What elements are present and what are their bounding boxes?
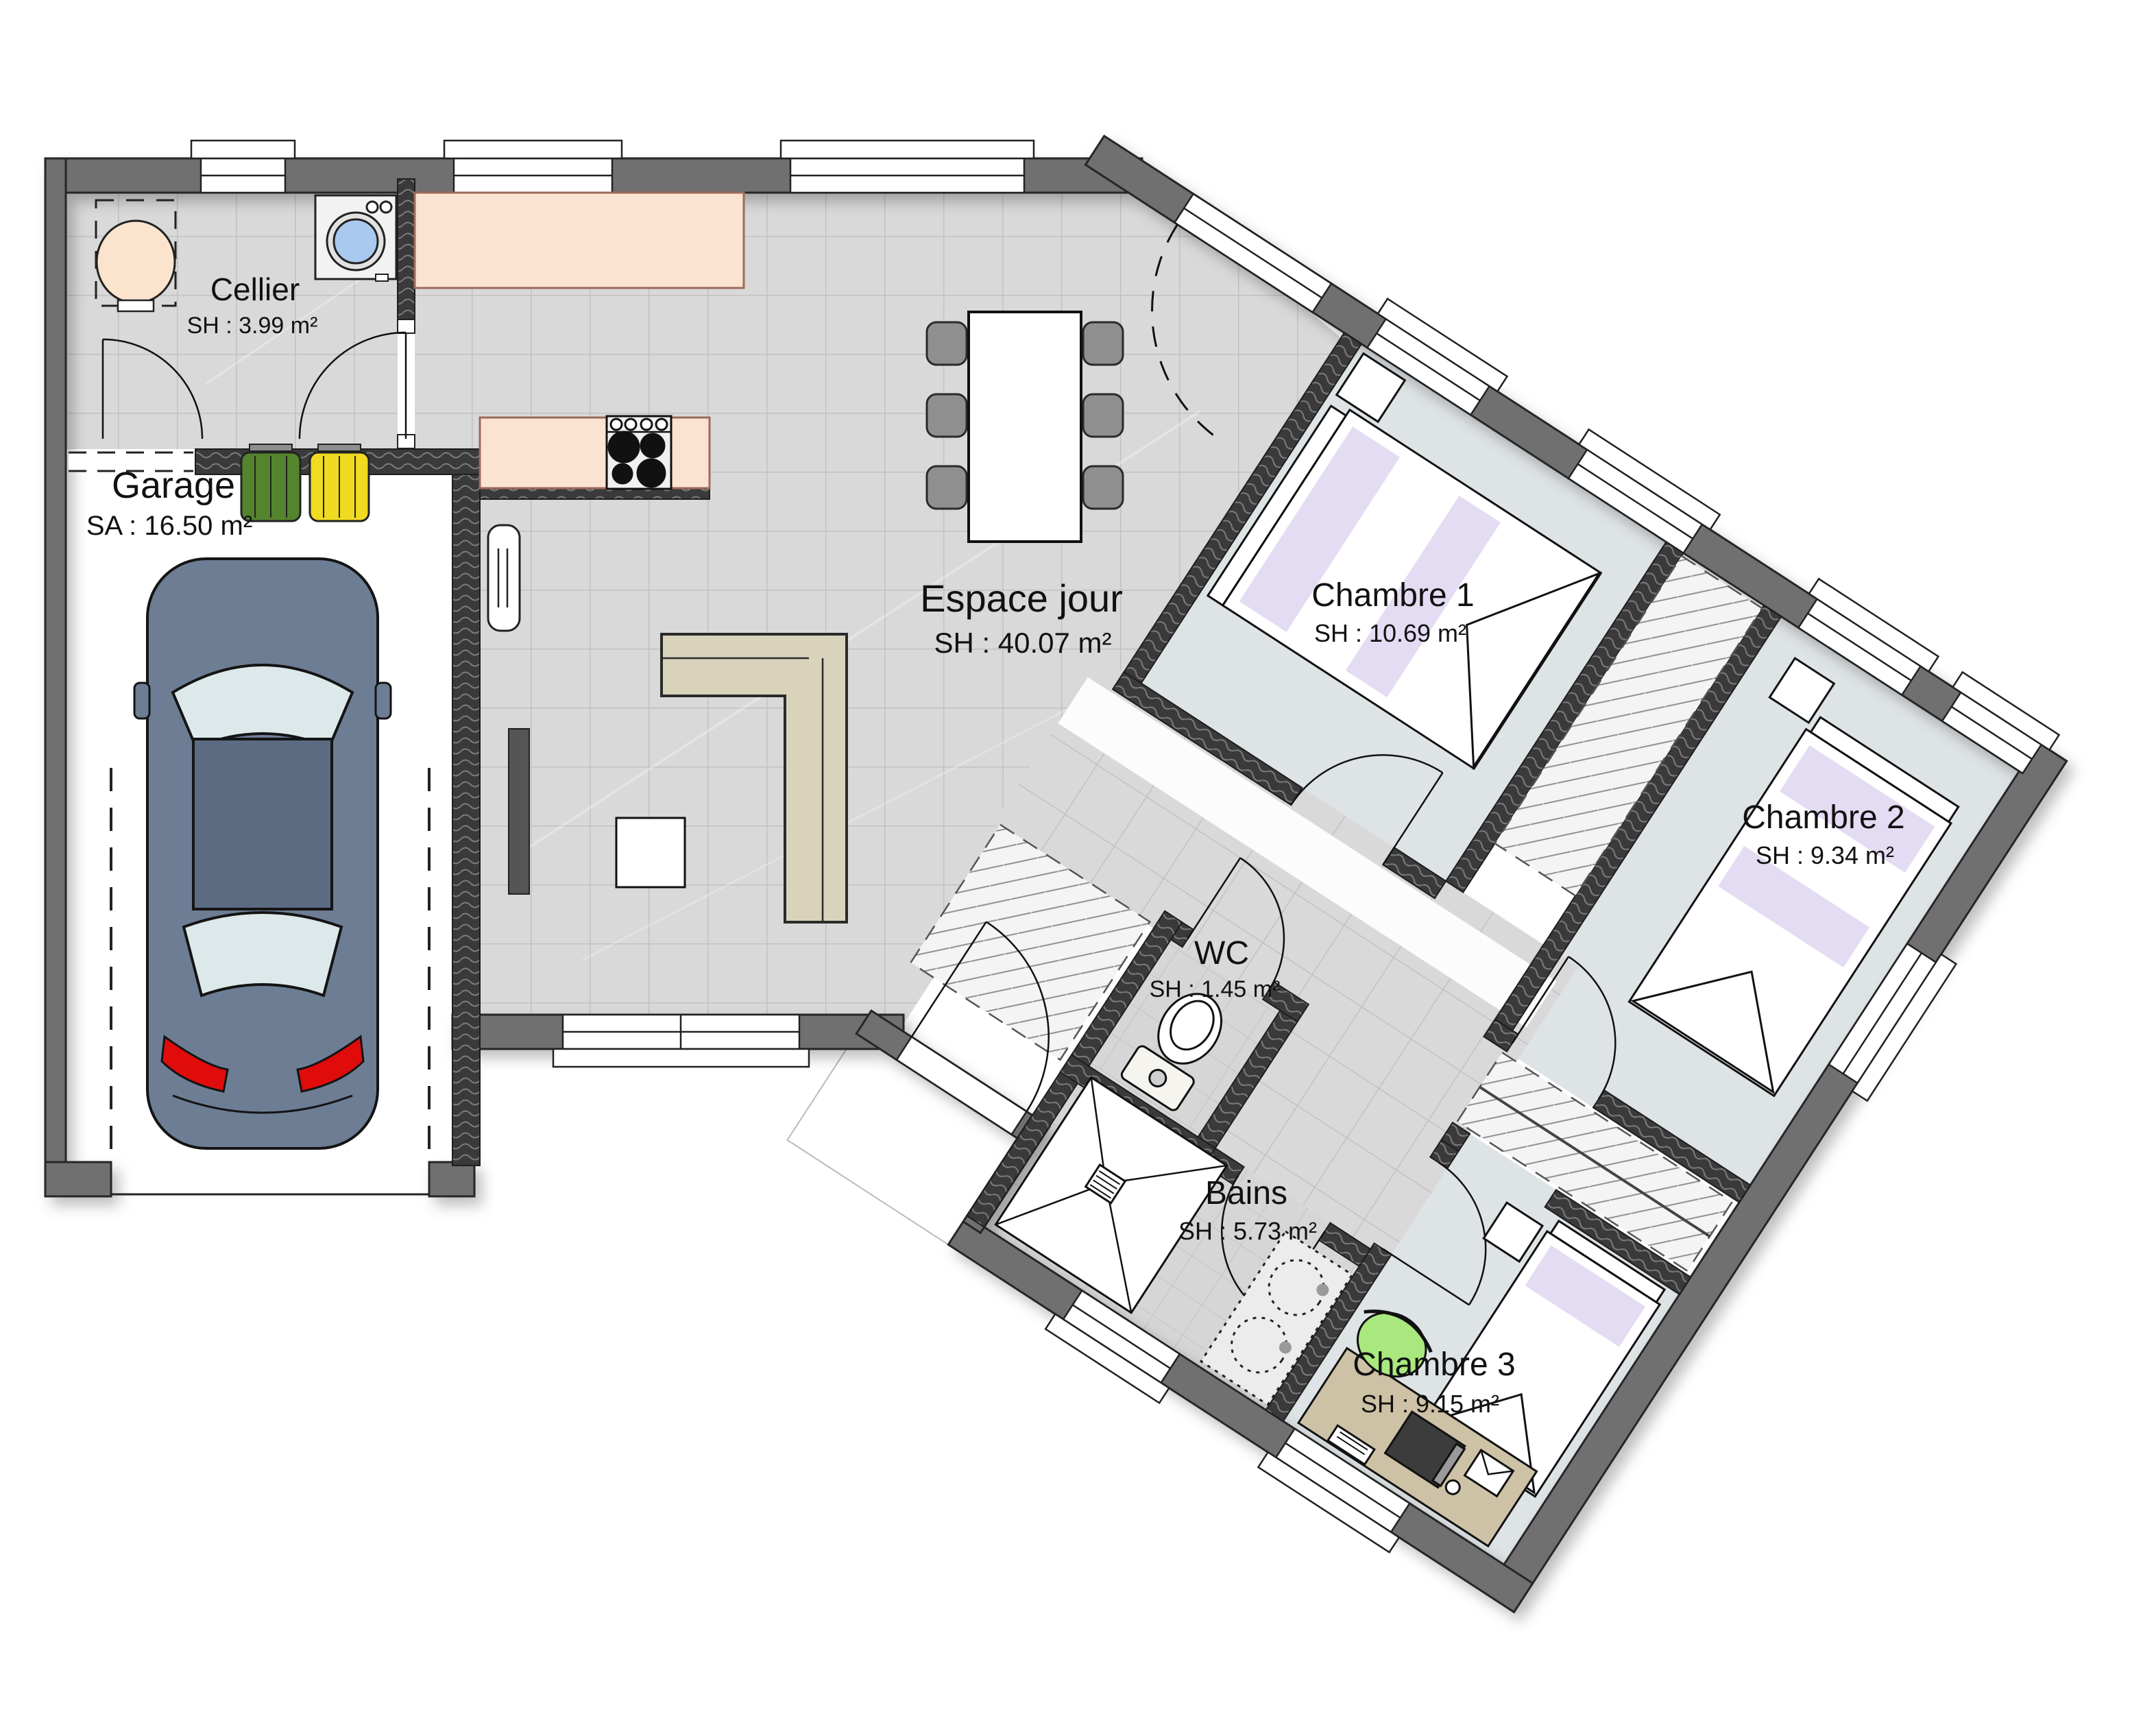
bin-green [241, 444, 300, 521]
water-heater [97, 221, 175, 303]
wall-garage-bottom-right [429, 1162, 474, 1196]
room-label-cellier: Cellier [210, 271, 300, 307]
room-label-bains: Bains [1205, 1175, 1287, 1211]
floor-plan-page: Cellier SH : 3.99 m² Garage SA : 16.50 m… [0, 0, 2156, 1714]
room-area-chambre1: SH : 10.69 m² [1314, 619, 1466, 647]
room-label-chambre3: Chambre 3 [1353, 1347, 1515, 1383]
dining-table [969, 312, 1081, 542]
room-area-bains: SH : 5.73 m² [1178, 1217, 1317, 1245]
room-label-wc: WC [1194, 935, 1249, 971]
radiator [488, 525, 520, 631]
wall-garage-bottom-left [45, 1162, 111, 1196]
room-label-espace-jour: Espace jour [920, 577, 1123, 620]
counter-peninsula [480, 418, 710, 488]
dining-set [927, 312, 1123, 542]
floor-plan-drawing: Cellier SH : 3.99 m² Garage SA : 16.50 m… [0, 0, 2156, 1714]
room-label-chambre1: Chambre 1 [1311, 577, 1474, 614]
tv-unit [509, 729, 529, 894]
bin-yellow [310, 444, 369, 521]
wall-kitchen-peninsula [480, 488, 710, 499]
room-area-chambre3: SH : 9.15 m² [1361, 1390, 1499, 1418]
room-area-wc: SH : 1.45 m² [1150, 976, 1281, 1002]
car [134, 559, 391, 1148]
room-area-garage: SA : 16.50 m² [86, 511, 252, 541]
coffee-table [616, 818, 685, 887]
room-area-cellier: SH : 3.99 m² [187, 313, 318, 339]
washing-machine [315, 195, 396, 281]
stove [607, 416, 671, 489]
wall-left [45, 158, 66, 1196]
wall-cellier-right [398, 179, 415, 333]
room-area-espace-jour: SH : 40.07 m² [934, 627, 1111, 659]
counter-top [415, 193, 744, 288]
room-area-chambre2: SH : 9.34 m² [1756, 841, 1894, 869]
wall-garage-right [452, 474, 480, 1166]
room-label-chambre2: Chambre 2 [1742, 799, 1904, 836]
room-label-garage: Garage [112, 465, 235, 506]
